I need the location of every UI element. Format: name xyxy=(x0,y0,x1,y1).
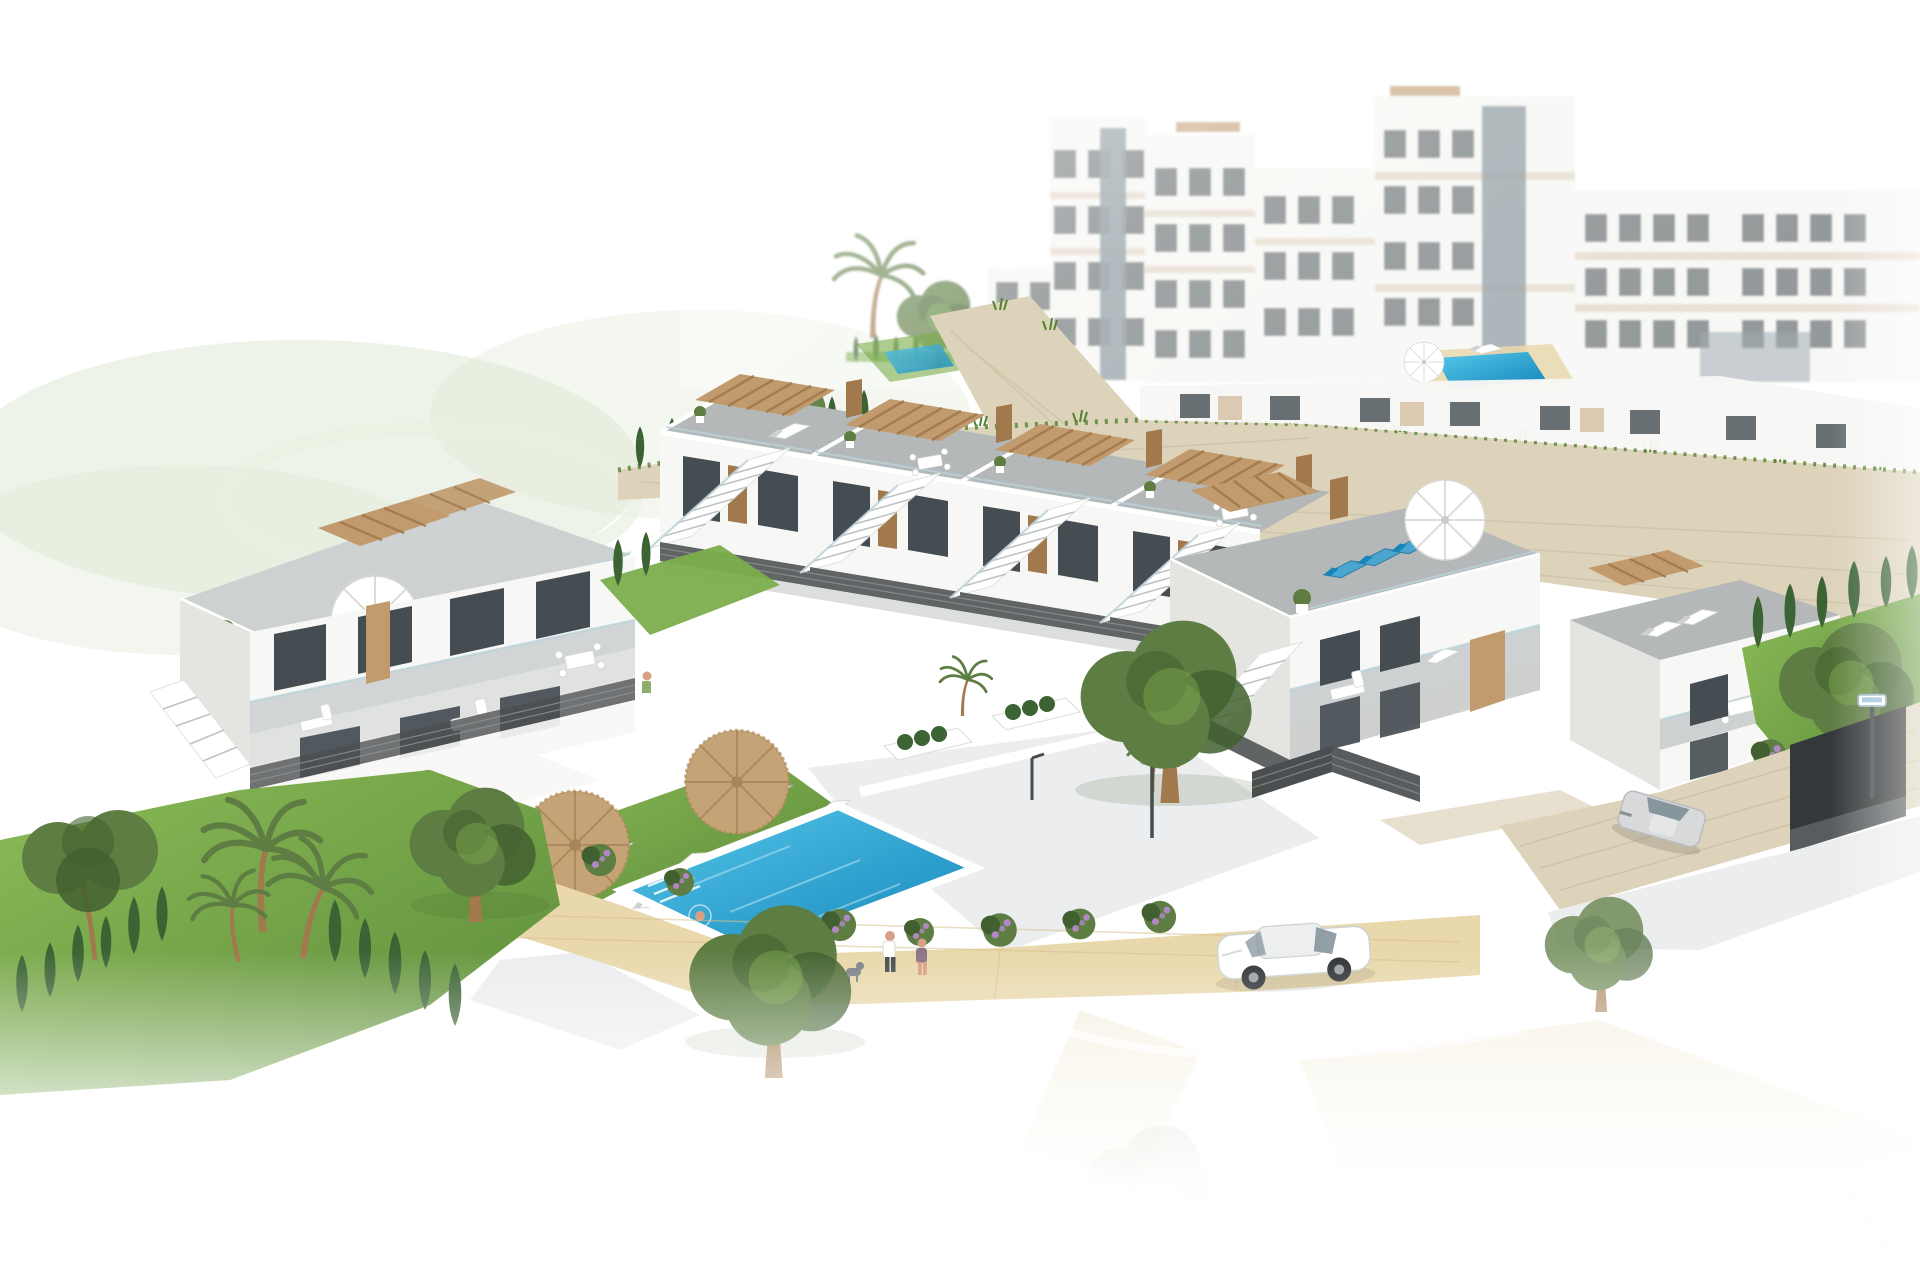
right-fade xyxy=(1830,0,1920,1280)
background-apartments xyxy=(680,60,1920,390)
architectural-render xyxy=(0,0,1920,1280)
straw-parasol-icon xyxy=(685,730,789,834)
bottom-fade xyxy=(0,950,1920,1280)
render-image xyxy=(0,0,1920,1280)
